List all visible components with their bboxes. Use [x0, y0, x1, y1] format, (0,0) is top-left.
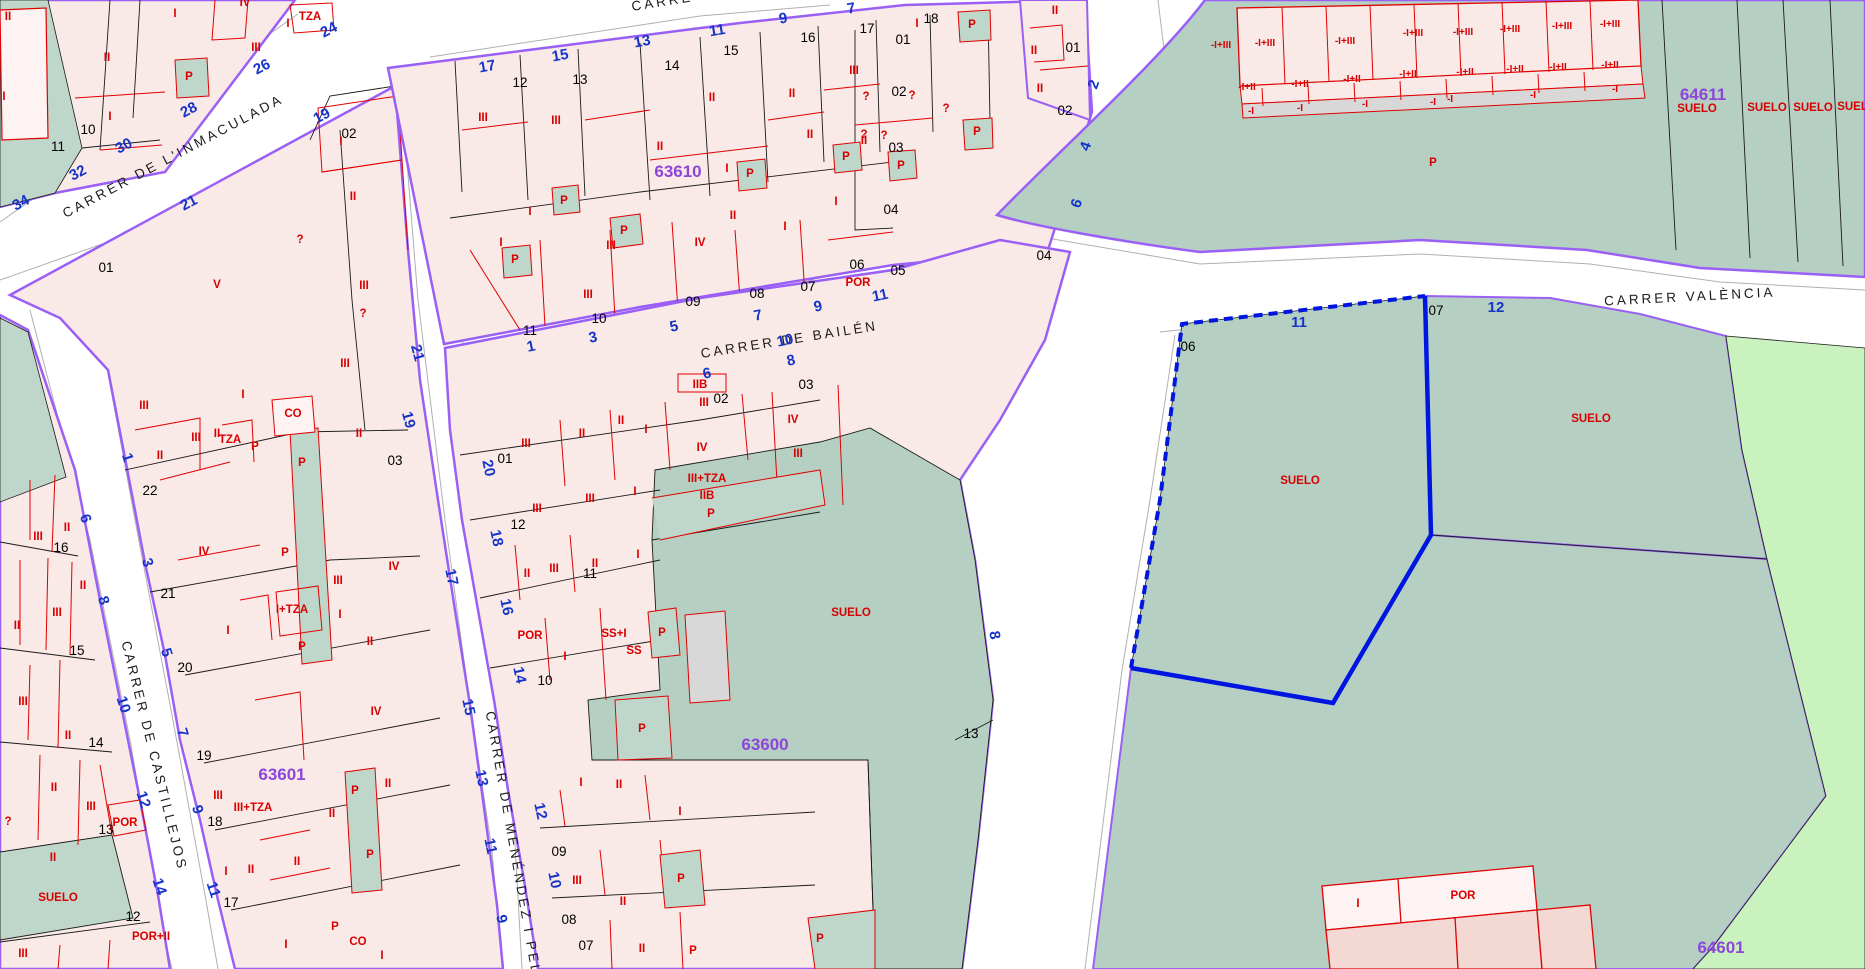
- building-code-91-III: III: [606, 240, 616, 252]
- building-code-134-SUELO: SUELO: [831, 607, 871, 619]
- parcel-number-28-06: 06: [849, 257, 864, 272]
- block-number-1-63600: 63600: [741, 735, 788, 754]
- building-code-33-P: P: [298, 641, 306, 653]
- parcel-number-13-14: 14: [88, 735, 104, 750]
- building-code-45-III+TZA: III+TZA: [234, 802, 273, 814]
- building-code-24-II: II: [356, 428, 362, 440]
- building-code-39-P: P: [366, 849, 374, 861]
- parcel-number-32-10: 10: [591, 311, 606, 326]
- building-code-121-P: P: [658, 627, 666, 639]
- building-code-116-II: II: [592, 558, 598, 570]
- parcel-number-40-12: 12: [510, 517, 525, 532]
- parcel-number-34-01: 01: [1065, 40, 1080, 55]
- building-code-141-SUELO: SUELO: [1793, 102, 1833, 114]
- building-code-89-I: I: [528, 206, 531, 218]
- building-code-76-?: ?: [862, 91, 869, 103]
- building-code-30-IV: IV: [389, 561, 400, 573]
- house-number-4-26: 26: [251, 56, 274, 79]
- parcel-number-9-17: 17: [223, 895, 238, 910]
- building-code-68-II: II: [789, 88, 795, 100]
- parcel-number-46-13: 13: [963, 726, 978, 741]
- parcel-number-24-02: 02: [891, 84, 906, 99]
- building-code-43-II: II: [294, 856, 300, 868]
- building-code-52-III: III: [52, 607, 62, 619]
- parcel-number-20-16: 16: [800, 30, 815, 45]
- townhouse-code-18--I: -I: [1362, 99, 1368, 110]
- building-code-99-II: II: [1037, 83, 1043, 95]
- building-code-117-I: I: [636, 549, 639, 561]
- house-number-9-15: 15: [551, 46, 570, 66]
- parcel-number-29-07: 07: [800, 279, 815, 294]
- building-code-55-III: III: [18, 696, 28, 708]
- building-code-15-III: III: [139, 400, 149, 412]
- building-code-65-III: III: [478, 112, 488, 124]
- building-code-126-II: II: [616, 779, 622, 791]
- parcel-number-36-04: 04: [1036, 248, 1052, 263]
- house-number-45-18: 18: [486, 528, 506, 548]
- parcel-number-22-18: 18: [923, 11, 938, 26]
- building-code-63-?: ?: [4, 816, 11, 828]
- townhouse-code-14--I+II: -I+II: [1549, 62, 1567, 73]
- building-code-6-III: III: [251, 42, 261, 54]
- building-code-53-II: II: [80, 580, 86, 592]
- townhouse-code-13--I+II: -I+II: [1506, 64, 1524, 75]
- building-code-125-I: I: [579, 777, 582, 789]
- parcel-number-10-03: 03: [387, 453, 402, 468]
- house-number-8-17: 17: [478, 57, 497, 77]
- building-code-97-II: II: [1052, 5, 1058, 17]
- house-number-13-7: 7: [846, 0, 857, 18]
- townhouse-code-6--I+III: -I+III: [1552, 21, 1573, 32]
- house-number-10-13: 13: [633, 32, 652, 52]
- building-code-7-P: P: [185, 71, 193, 83]
- building-code-9-I: I: [2, 91, 5, 103]
- house-number-44-20: 20: [478, 458, 498, 478]
- building-code-47-CO: CO: [349, 936, 366, 948]
- parcel-number-35-02: 02: [1057, 103, 1072, 118]
- building-code-72-I: I: [725, 163, 728, 175]
- street-name-3-CARRER VALÈNCIA: CARRER VALÈNCIA: [1604, 285, 1776, 309]
- building-code-113-I: I: [633, 486, 636, 498]
- building-code-51-II: II: [64, 522, 70, 534]
- building-code-103-III: III: [699, 397, 709, 409]
- building-code-60-SUELO: SUELO: [38, 892, 78, 904]
- parcel-number-26-04: 04: [883, 202, 899, 217]
- parcel-12-suelo[interactable]: [1425, 296, 1767, 559]
- building-code-62-II: II: [50, 852, 56, 864]
- building-code-101-III+TZA: III+TZA: [688, 473, 727, 485]
- building-code-56-II: II: [65, 730, 71, 742]
- building-code-70-I: I: [915, 18, 918, 30]
- building-code-127-I: I: [678, 806, 681, 818]
- block-number-4-64601: 64601: [1697, 938, 1744, 957]
- building-code-64-III: III: [18, 948, 28, 960]
- building-code-130-II: II: [639, 943, 645, 955]
- block-number-0-63610: 63610: [654, 162, 701, 181]
- building-code-85-P: P: [968, 19, 976, 31]
- parcel-number-12-15: 15: [69, 643, 84, 658]
- parcel-number-16-12: 12: [512, 75, 527, 90]
- building-code-92-II: II: [730, 210, 736, 222]
- parcel-number-21-17: 17: [859, 21, 874, 36]
- building-code-139-SUELO: SUELO: [1677, 103, 1717, 115]
- building-code-46-I: I: [284, 939, 287, 951]
- building-code-13-I: I: [339, 136, 342, 148]
- parcel-number-0-10: 10: [80, 122, 95, 137]
- street-name-1-CARRE: CARRE: [630, 0, 694, 14]
- building-code-71-II: II: [657, 141, 663, 153]
- building-code-37-II: II: [385, 778, 391, 790]
- building-code-118-POR: POR: [518, 630, 544, 642]
- parcel-number-6-20: 20: [177, 660, 192, 675]
- house-number-48-12: 12: [530, 801, 550, 821]
- building-code-67-II: II: [709, 92, 715, 104]
- building-code-123-P: P: [707, 508, 715, 520]
- building-code-128-III: III: [572, 875, 582, 887]
- townhouse-code-7--I+III: -I+III: [1600, 19, 1621, 30]
- parcel-number-8-18: 18: [207, 814, 222, 829]
- building-code-124-P: P: [638, 723, 646, 735]
- building-code-12-III: III: [359, 280, 369, 292]
- building-code-17-III: III: [191, 432, 201, 444]
- building-code-58-III: III: [86, 801, 96, 813]
- house-number-40-15: 15: [458, 697, 478, 717]
- building-code-40-II: II: [329, 808, 335, 820]
- townhouse-code-17--I: -I: [1297, 103, 1303, 114]
- house-number-25-10: 10: [775, 331, 795, 351]
- building-code-138-POR: POR: [1451, 890, 1477, 902]
- building-code-90-IV: IV: [695, 237, 706, 249]
- building-code-32-I: I: [226, 625, 229, 637]
- building-code-140-SUELO: SUELO: [1747, 102, 1787, 114]
- building-code-87-P: P: [746, 168, 754, 180]
- townhouse-code-0--I+III: -I+III: [1211, 40, 1232, 51]
- building-code-35-II: II: [367, 636, 373, 648]
- building-code-10-V: V: [213, 279, 221, 291]
- building-code-28-P: P: [281, 547, 289, 559]
- parcel-number-25-03: 03: [888, 140, 903, 155]
- parcel-number-11-16: 16: [53, 540, 68, 555]
- parcel-number-42-10: 10: [537, 673, 552, 688]
- building-code-86-P: P: [973, 126, 981, 138]
- building-code-122-I: I: [563, 651, 566, 663]
- parcel-number-30-08: 08: [749, 286, 764, 301]
- parcel-number-7-19: 19: [196, 748, 211, 763]
- building-code-131-P: P: [677, 873, 685, 885]
- building-code-16-II: II: [157, 450, 163, 462]
- parcel-number-19-15: 15: [723, 43, 738, 58]
- building-code-73-II: II: [807, 129, 813, 141]
- townhouse-code-2--I+III: -I+III: [1335, 36, 1356, 47]
- building-code-8-II: II: [5, 11, 11, 23]
- building-code-20-I: I: [241, 389, 244, 401]
- building-code-54-II: II: [14, 620, 20, 632]
- building-code-2-I: I: [108, 111, 111, 123]
- building-code-19-TZA: TZA: [219, 434, 241, 446]
- townhouse-code-9--I+II: -I+II: [1291, 79, 1309, 90]
- building-code-81-P: P: [560, 195, 568, 207]
- building-code-49-P: P: [331, 921, 339, 933]
- townhouse-code-3--I+III: -I+III: [1403, 28, 1424, 39]
- building-code-80-?: ?: [942, 103, 949, 115]
- townhouse-code-15--I+II: -I+II: [1601, 60, 1619, 71]
- building-code-77-?: ?: [908, 90, 915, 102]
- building-code-114-II: II: [524, 568, 530, 580]
- parcel-number-5-21: 21: [160, 586, 175, 601]
- building-code-41-I: I: [224, 866, 227, 878]
- house-number-49-10: 10: [544, 870, 564, 890]
- building-code-111-III: III: [532, 503, 542, 515]
- parcel-number-47-06: 06: [1180, 339, 1195, 354]
- building-code-44-III: III: [213, 790, 223, 802]
- house-number-12-9: 9: [778, 9, 789, 27]
- house-number-52-8: 8: [985, 630, 1003, 641]
- building-code-23-P: P: [298, 457, 306, 469]
- parcel-number-45-07: 07: [578, 938, 593, 953]
- building-code-31-I+TZA: I+TZA: [276, 604, 308, 616]
- building-code-75-I: I: [834, 196, 837, 208]
- parcel-number-1-11: 11: [51, 139, 65, 154]
- parcel-number-18-14: 14: [664, 58, 680, 73]
- parcel-number-33-11: 11: [523, 323, 537, 338]
- cadastral-map-viewport[interactable]: CARRER DE L'INMACULADACARRECARRER DE BAI…: [0, 0, 1865, 969]
- map-canvas[interactable]: CARRER DE L'INMACULADACARRECARRER DE BAI…: [0, 0, 1865, 969]
- building-code-88-P: P: [511, 254, 519, 266]
- building-code-66-III: III: [551, 115, 561, 127]
- building-code-96-POR: POR: [846, 277, 872, 289]
- building-code-107-II: II: [618, 415, 624, 427]
- building-code-136-SUELO: SUELO: [1571, 413, 1611, 425]
- block-number-2-63601: 63601: [258, 765, 305, 784]
- building-code-42-II: II: [248, 864, 254, 876]
- building-code-11-II: II: [350, 191, 356, 203]
- building-code-27-IV: IV: [199, 546, 210, 558]
- parcel-number-17-13: 13: [572, 72, 587, 87]
- building-code-112-III: III: [585, 493, 595, 505]
- building-code-133-P: P: [816, 933, 824, 945]
- building-code-69-III: III: [849, 65, 859, 77]
- parcel-number-37-02: 02: [713, 391, 728, 406]
- building-code-104-IV: IV: [788, 414, 799, 426]
- building-code-135-SUELO: SUELO: [1280, 475, 1320, 487]
- building-code-98-II: II: [1031, 45, 1037, 57]
- building-code-22-P: P: [251, 441, 259, 453]
- building-code-110-III: III: [521, 438, 531, 450]
- building-code-94-I: I: [499, 237, 502, 249]
- building-code-132-P: P: [689, 945, 697, 957]
- townhouse-code-22--I: -I: [1612, 84, 1618, 95]
- building-code-119-SS+I: SS+I: [601, 628, 626, 640]
- building-code-4-TZA: TZA: [299, 11, 321, 23]
- townhouse-rows[interactable]: [1237, 0, 1645, 118]
- building-code-120-SS: SS: [626, 645, 642, 657]
- parcel-number-15-12: 12: [125, 909, 140, 924]
- building-code-34-I: I: [338, 609, 341, 621]
- parcel-number-14-13: 13: [98, 822, 113, 837]
- house-number-51-12: 12: [1488, 299, 1505, 316]
- building-code-79-?: ?: [880, 130, 887, 142]
- building-code-109-II: II: [579, 428, 585, 440]
- parcel-number-44-08: 08: [561, 912, 576, 927]
- townhouse-code-20--I: -I: [1447, 94, 1453, 105]
- building-code-82-P: P: [620, 225, 628, 237]
- building-code-50-III: III: [33, 531, 43, 543]
- building-code-5-I: I: [286, 18, 289, 30]
- parcel-number-4-22: 22: [142, 483, 157, 498]
- townhouse-code-5--I+III: -I+III: [1500, 24, 1521, 35]
- townhouse-code-12--I+II: -I+II: [1456, 67, 1474, 78]
- townhouse-code-4--I+III: -I+III: [1453, 27, 1474, 38]
- building-code-1-I: I: [173, 8, 176, 20]
- building-code-59-POR: POR: [113, 817, 139, 829]
- building-code-84-P: P: [897, 160, 905, 172]
- building-code-95-III: III: [583, 289, 593, 301]
- building-code-105-IV: IV: [697, 442, 708, 454]
- house-number-46-16: 16: [496, 597, 516, 617]
- building-code-36-IV: IV: [371, 706, 382, 718]
- building-code-102-IIB: IIB: [700, 490, 715, 502]
- house-number-50-11: 11: [1291, 314, 1307, 331]
- block-number-3-64611: 64611: [1680, 85, 1726, 104]
- townhouse-code-1--I+III: -I+III: [1255, 38, 1276, 49]
- building-code-83-P: P: [842, 151, 850, 163]
- selected-area[interactable]: [1093, 296, 1826, 969]
- building-code-57-II: II: [51, 782, 57, 794]
- building-code-106-III: III: [793, 448, 803, 460]
- building-code-143-P: P: [1429, 157, 1437, 169]
- townhouse-code-21--I: -I: [1530, 90, 1536, 101]
- townhouse-code-8--I+II: -I+II: [1238, 82, 1256, 93]
- house-number-42-11: 11: [480, 837, 500, 856]
- house-number-39-17: 17: [441, 567, 461, 587]
- block-64611[interactable]: [997, 0, 1865, 277]
- building-code-93-I: I: [783, 221, 786, 233]
- building-code-61-POR+II: POR+II: [132, 931, 170, 943]
- building-code-142-SUELO: SUELO: [1837, 101, 1865, 113]
- building-code-0-II: II: [104, 52, 110, 64]
- building-code-100-IIB: IIB: [693, 379, 708, 391]
- building-code-21-CO: CO: [284, 408, 301, 420]
- townhouse-code-19--I: -I: [1430, 97, 1436, 108]
- building-code-115-III: III: [549, 563, 559, 575]
- parcel-number-31-09: 09: [685, 294, 700, 309]
- building-code-3-IV: IV: [240, 0, 251, 9]
- townhouse-code-11--I+II: -I+II: [1399, 69, 1417, 80]
- parcel-number-43-09: 09: [551, 844, 566, 859]
- building-code-78-?: ?: [860, 129, 867, 141]
- townhouse-code-16--I: -I: [1248, 106, 1254, 117]
- building-code-25-III: III: [340, 358, 350, 370]
- building-code-38-P: P: [351, 785, 359, 797]
- building-code-48-I: I: [380, 950, 383, 962]
- house-number-11-11: 11: [708, 21, 727, 40]
- building-code-108-I: I: [644, 424, 647, 436]
- house-number-41-13: 13: [471, 768, 491, 788]
- building-code-137-I: I: [1356, 898, 1359, 910]
- building-code-129-II: II: [620, 896, 626, 908]
- parcel-number-23-01: 01: [895, 32, 910, 47]
- parcel-number-39-01: 01: [497, 451, 512, 466]
- townhouse-code-10--I+II: -I+II: [1343, 74, 1361, 85]
- building-code-14-?: ?: [296, 234, 303, 246]
- parcel-number-48-07: 07: [1428, 303, 1443, 318]
- building-code-26-?: ?: [359, 308, 366, 320]
- parcel-number-27-05: 05: [890, 263, 905, 278]
- parcel-number-3-02: 02: [341, 126, 356, 141]
- parcel-number-2-01: 01: [98, 260, 113, 275]
- parcel-number-38-03: 03: [798, 377, 813, 392]
- building-outline[interactable]: [0, 8, 48, 140]
- building-code-29-III: III: [333, 575, 343, 587]
